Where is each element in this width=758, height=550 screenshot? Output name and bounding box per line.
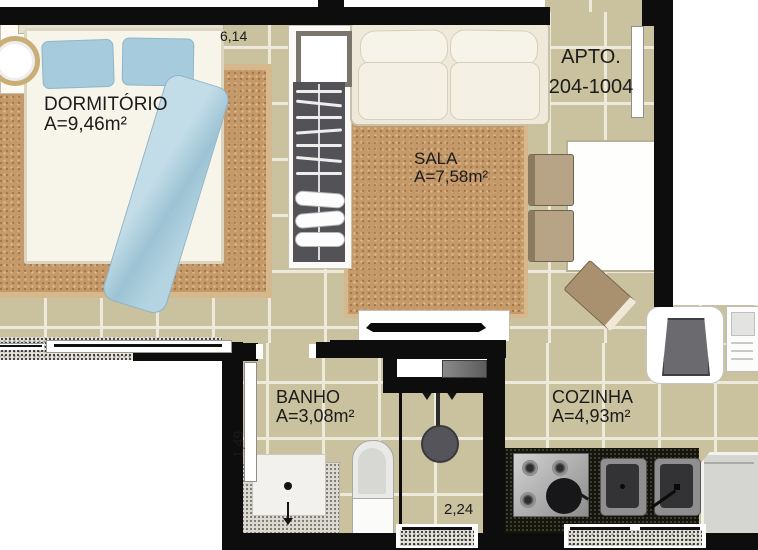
wall-tv — [330, 340, 506, 358]
hanger-bar — [296, 144, 342, 147]
kitchen-window-glass — [570, 527, 630, 530]
kitchen-window-glass — [640, 527, 700, 530]
wall-top-column — [318, 0, 344, 8]
washer — [701, 452, 758, 544]
wash-sink-right-ridge — [731, 350, 753, 352]
sofa-seat-cushion — [450, 62, 540, 120]
bathroom-window-sill — [400, 530, 474, 546]
kitchen-sink-drain — [620, 484, 625, 489]
cooktop-burner — [552, 460, 568, 476]
dining-chair — [528, 154, 574, 206]
wash-sink-right-ridge — [731, 358, 753, 360]
toilet-seat — [358, 448, 386, 494]
dimension-top-width: 6,14 — [220, 29, 247, 44]
room-name: DORMITÓRIO — [44, 95, 168, 115]
hanger-bar — [296, 172, 342, 175]
wash-sink-right-basin — [731, 312, 755, 336]
room-area: A=9,46m² — [44, 115, 168, 135]
dining-chair — [528, 210, 574, 262]
bedroom-window-glass — [54, 344, 222, 347]
floor-entry — [545, 0, 655, 12]
vanity-faucet-arrow — [283, 518, 293, 525]
room-label-dormitorio: DORMITÓRIO A=9,46m² — [44, 95, 168, 135]
bathroom-door-jamb — [256, 344, 263, 359]
floor-plan: DORMITÓRIO A=9,46m² SALA A=7,58m² BANHO … — [0, 0, 758, 550]
wall-right — [654, 0, 673, 307]
room-label-sala: SALA A=7,58m² — [414, 150, 488, 186]
kitchen-sink-drain — [674, 484, 680, 490]
room-area: A=7,58m² — [414, 168, 488, 186]
wall-top — [0, 7, 550, 25]
dimension-banho-height: 1,49 — [231, 431, 246, 458]
pan — [546, 478, 582, 514]
shower-head — [421, 425, 459, 463]
room-label-cozinha: COZINHA A=4,93m² — [552, 388, 633, 426]
bathroom-door-leaf — [244, 362, 257, 482]
towel-roll — [295, 232, 345, 247]
laundry-tub-basin — [662, 318, 710, 376]
wash-sink-right-ridge — [731, 342, 753, 344]
bed-pillow-left — [41, 39, 115, 89]
hanger-bar — [296, 116, 342, 119]
apartment-label-line2: 204-1004 — [538, 72, 644, 102]
toilet-tank — [352, 498, 394, 538]
room-name: BANHO — [276, 388, 355, 407]
dimension-banho-width: 2,24 — [444, 502, 473, 518]
sofa-seat-cushion — [358, 62, 448, 120]
bathroom-door-jamb — [309, 344, 316, 358]
shower-arm — [436, 393, 440, 429]
vanity-faucet-stem — [287, 502, 289, 518]
kitchen-window-sill — [568, 530, 702, 546]
bathroom-window-glass — [402, 527, 472, 530]
wall-bath-kitchen-divider — [483, 358, 505, 550]
cooktop-burner — [522, 460, 538, 476]
apartment-label-line1: APTO. — [538, 42, 644, 72]
niche-basin — [442, 360, 487, 378]
room-name: SALA — [414, 150, 488, 168]
apartment-label: APTO. 204-1004 — [538, 42, 644, 102]
room-label-banho: BANHO A=3,08m² — [276, 388, 355, 426]
cooktop-burner — [520, 492, 536, 508]
bedroom-window-left-glass — [0, 345, 42, 347]
closet-top-box — [296, 31, 352, 87]
vanity-drain — [284, 482, 292, 490]
shower-partition — [399, 390, 402, 536]
washer-lid-line — [704, 462, 754, 464]
dining-table — [566, 140, 658, 272]
room-area: A=4,93m² — [552, 407, 633, 426]
room-name: COZINHA — [552, 388, 633, 407]
hanger-bar — [296, 90, 342, 93]
living-rug — [344, 118, 528, 318]
room-area: A=3,08m² — [276, 407, 355, 426]
tv — [366, 323, 486, 332]
